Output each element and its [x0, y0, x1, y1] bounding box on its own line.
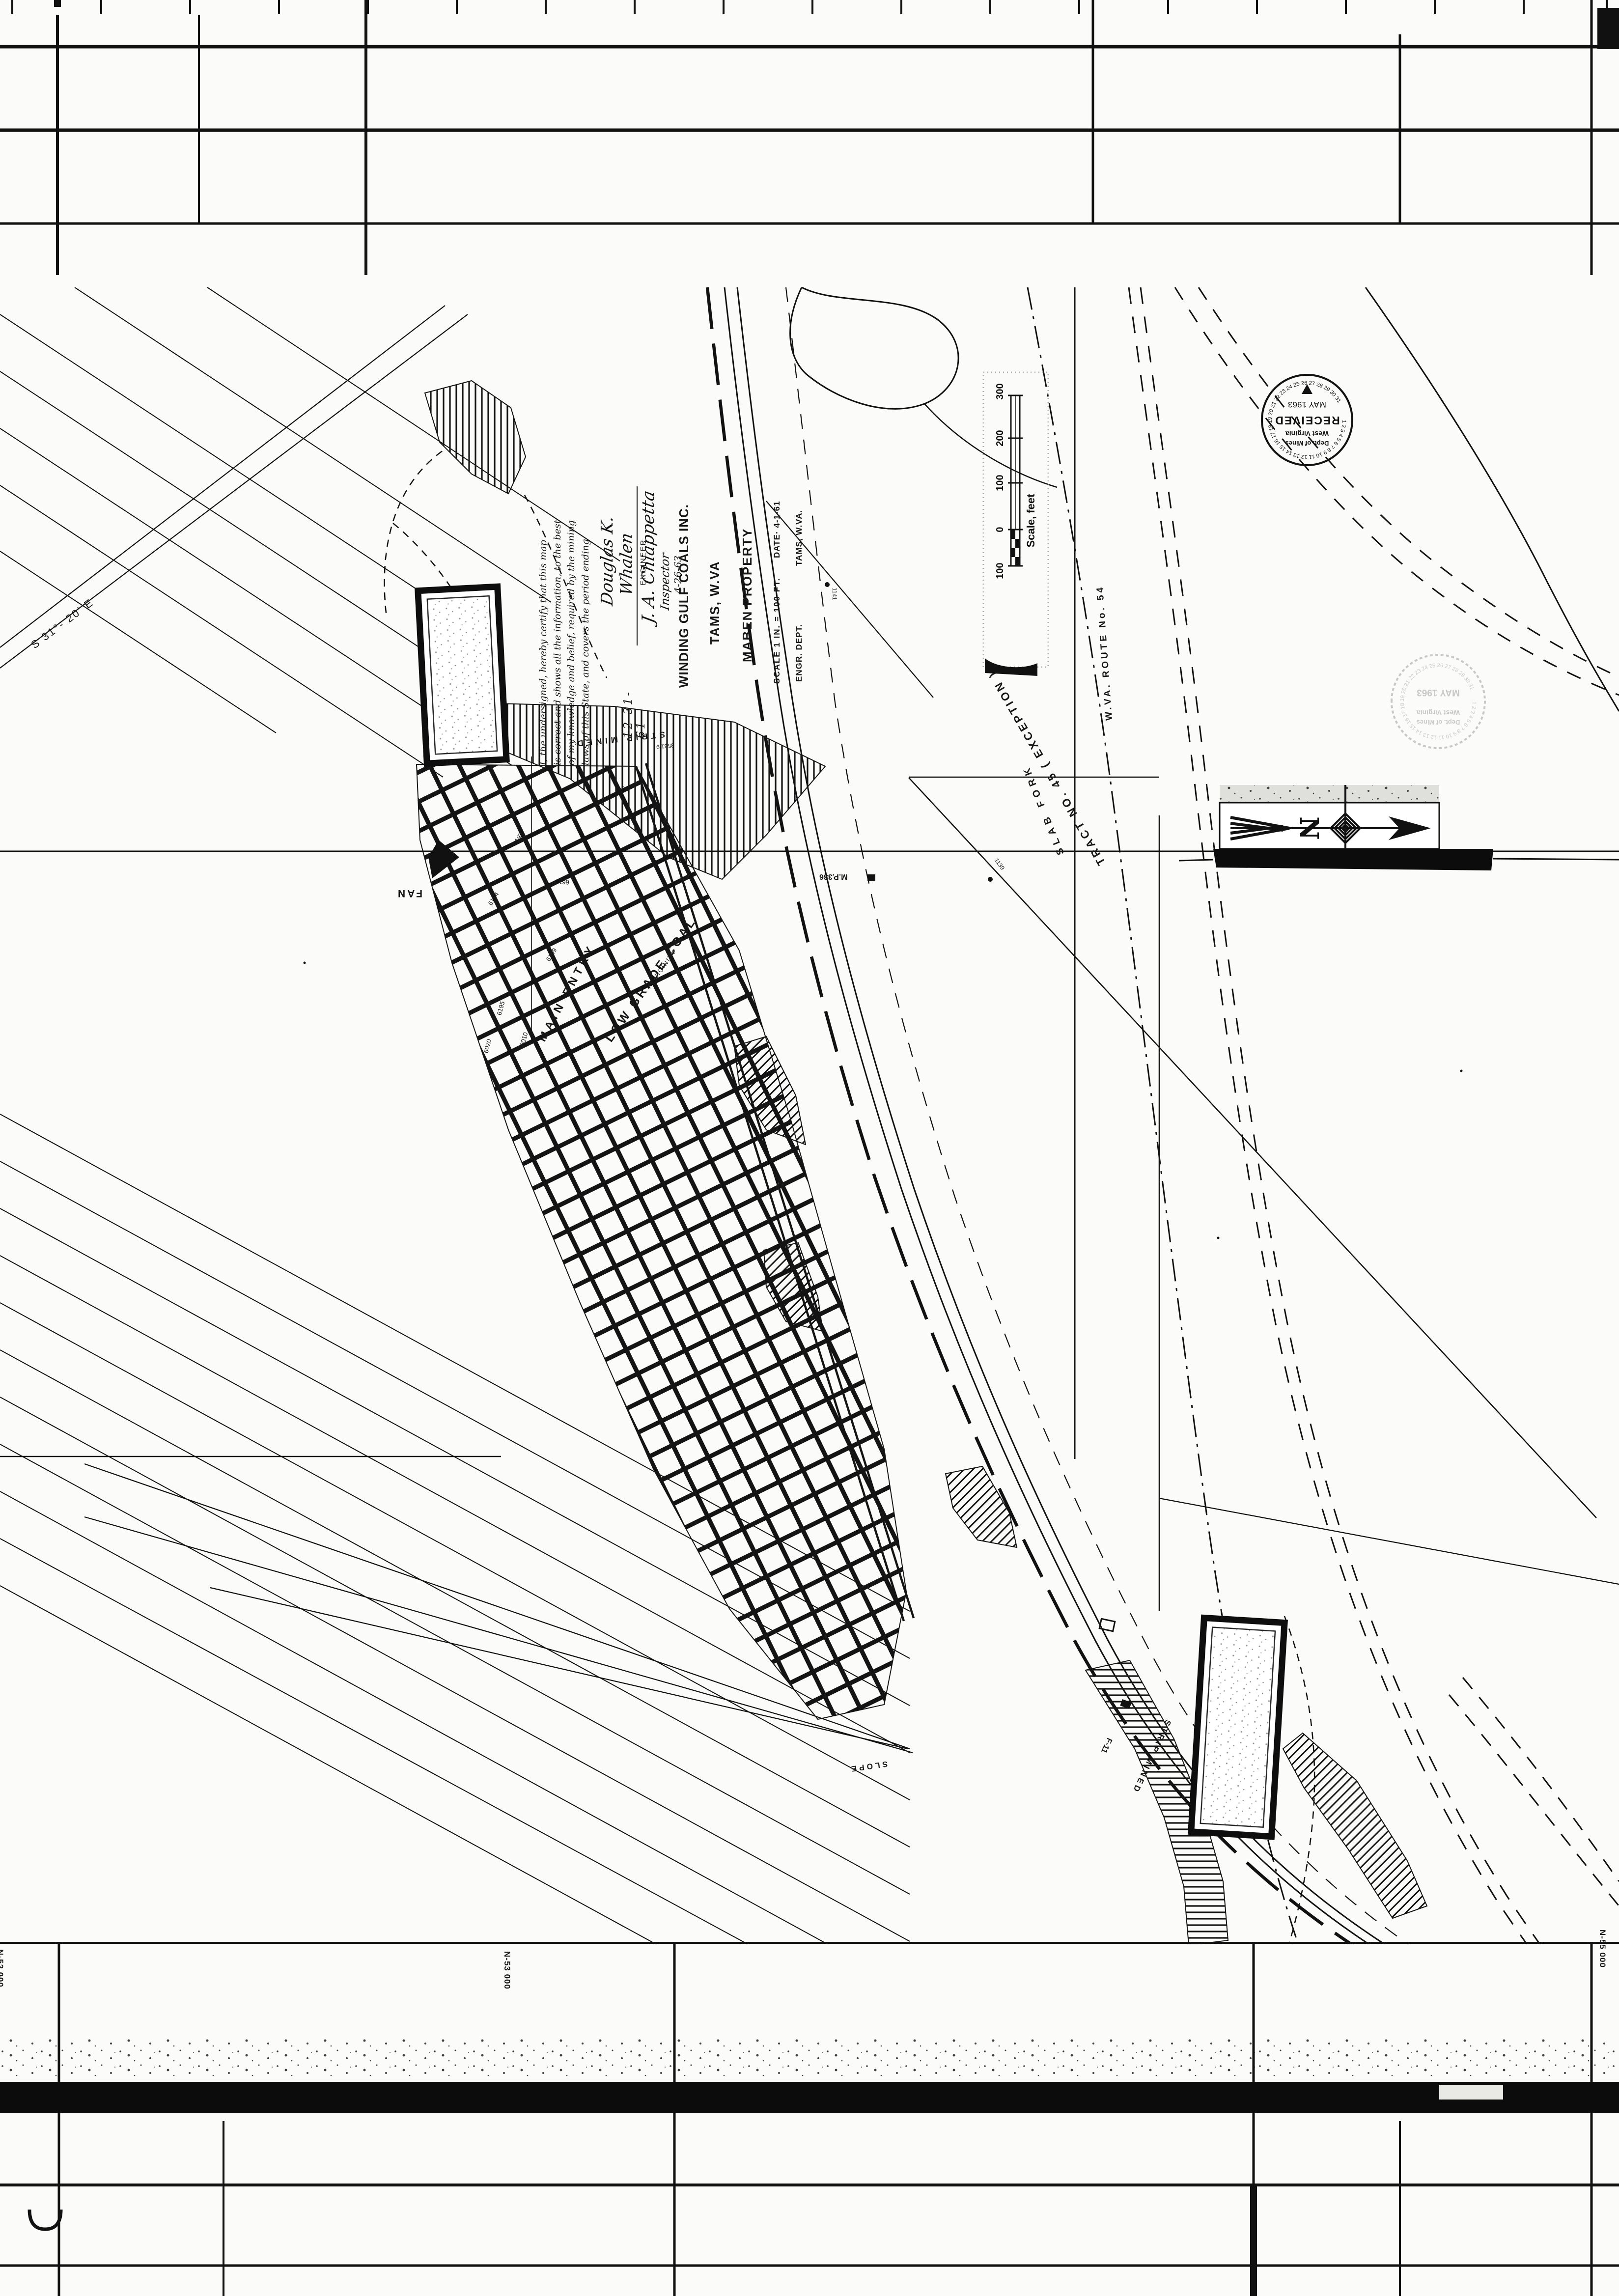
stamp-date: MAY 1963: [1288, 400, 1326, 409]
faded-stamp-date: MAY 1963: [1417, 687, 1460, 698]
oxbow-tributary: [790, 287, 1057, 487]
bottom-right-dashed-curves: [1449, 1678, 1619, 1906]
inspector-date: 4-26-63: [672, 461, 684, 593]
scan-mark-u: [29, 2210, 61, 2229]
svg-text:0: 0: [995, 527, 1005, 532]
permit-box-south: [1191, 1618, 1284, 1837]
milepost-label: M.P.336: [819, 872, 848, 881]
upper-right-solid-curve: [1366, 287, 1619, 711]
certification-line: I, the undersigned, hereby certify that …: [536, 483, 551, 765]
scale-bar-ticks: 300 200 100 0 100: [995, 383, 1005, 579]
north-letter: N: [1294, 816, 1324, 840]
pole-dots: [825, 582, 993, 882]
north-arrow: N: [1179, 785, 1619, 870]
scan-toner-band: [0, 2082, 1619, 2113]
stamp-received: RECEIVED: [1274, 414, 1340, 427]
projection-lines-upper: [0, 287, 620, 777]
svg-text:200: 200: [995, 430, 1005, 446]
elevation-figure: 6610: [555, 878, 570, 886]
certification-line: is correct and shows all the information…: [551, 483, 565, 765]
grid-label-right: N-55 000: [1597, 1930, 1607, 1968]
pole-number: 1141: [831, 588, 838, 600]
permit-box-north: [418, 587, 506, 763]
upper-right-dashed-road: [1175, 287, 1619, 695]
grid-label-center: N-53 000: [502, 1951, 512, 1989]
svg-text:1 2 3 4 5 6 7 8 9 10 11 12 13: 1 2 3 4 5 6 7 8 9 10 11 12 13 14 15 16 1…: [1399, 663, 1477, 740]
scanned-mine-map-sheet: { "sheet": { "grid_labels": { "left": "N…: [0, 0, 1619, 2296]
building-outline: [1099, 1619, 1115, 1631]
fan-label: FAN: [396, 887, 422, 899]
stamp-state: West Virginia: [1285, 430, 1329, 438]
map-linework-canvas: 300 200 100 0 100 Scale, feet 1 2 3 4 5 …: [0, 0, 1619, 2296]
title-property: MABEN PROPERTY: [740, 528, 755, 662]
faded-stamp-state: West Virginia: [1417, 709, 1460, 717]
title-dept: ENGR. DEPT.: [794, 624, 804, 682]
mine-workings-lattice: [417, 764, 906, 1719]
scan-corner-blob: [1597, 8, 1619, 49]
inspector-block: J. A. Chiappetta Inspector 4-26-63: [639, 461, 684, 623]
scan-noise-strip: [0, 2039, 1619, 2077]
svg-text:300: 300: [995, 383, 1005, 399]
engineer-signature: Douglas K. Whalen: [597, 479, 638, 645]
certification-line: laws of this State, and covers the perio…: [579, 483, 593, 765]
transmission-diagonal: [909, 778, 1596, 1518]
certification-period: 12-31-61: [622, 676, 647, 738]
faded-stamp-dept: Dept. of Mines: [1417, 719, 1460, 726]
faded-stamp: 1 2 3 4 5 6 7 8 9 10 11 12 13 14 15 16 1…: [1392, 655, 1485, 748]
top-margin-grid: [0, 0, 1619, 275]
scale-bar: 300 200 100 0 100 Scale, feet: [983, 372, 1048, 676]
certification-block: I, the undersigned, hereby certify that …: [536, 483, 647, 765]
crop-line-dashed-curves: [385, 449, 1315, 1943]
svg-text:100: 100: [995, 475, 1005, 491]
inspector-signature: J. A. Chiappetta: [639, 459, 658, 624]
svg-text:100: 100: [995, 562, 1005, 579]
received-stamp: 1 2 3 4 5 6 7 8 9 10 11 12 13 14 15 16 1…: [1262, 375, 1352, 465]
title-location: TAMS, W.VA: [707, 560, 723, 644]
title-date: DATE· 4-1-61: [772, 501, 782, 558]
bottom-right-line: [1159, 1498, 1619, 1584]
transmission-diagonal-north: [766, 501, 933, 698]
scale-bar-caption: Scale, feet: [1025, 494, 1037, 548]
certification-line: of my knowledge and belief, required by …: [564, 483, 579, 765]
milepost-square: [867, 874, 875, 881]
stamp-dept: Dept. of Mines: [1285, 440, 1329, 447]
title-dept-location: TAMS, W.VA.: [794, 510, 804, 566]
bottom-margin-grid: [0, 1943, 1619, 2296]
inspector-title: Inspector: [658, 460, 672, 612]
title-scale: SCALE 1 IN. = 100 FT.: [772, 578, 782, 684]
grid-label-left: N-52 000: [0, 1949, 5, 1988]
